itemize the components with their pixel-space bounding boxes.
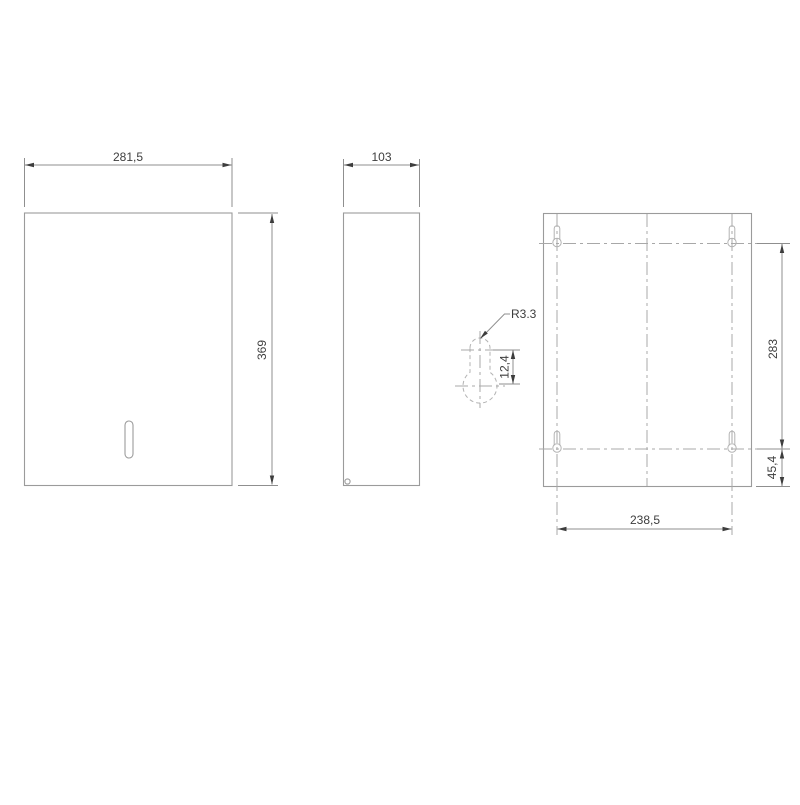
back-outline	[544, 214, 752, 487]
side-view	[344, 213, 420, 486]
dim-back-holes-spacing: 238,5	[558, 513, 732, 531]
dim-keyhole-offset: 12,4	[493, 350, 520, 384]
towel-slot	[125, 421, 133, 458]
arrowhead-icon	[344, 163, 353, 167]
arrowhead-icon	[558, 527, 567, 531]
front-view	[25, 213, 233, 486]
dim-side-depth: 103	[344, 150, 420, 207]
arrowhead-icon	[780, 450, 784, 459]
arrowhead-icon	[723, 527, 732, 531]
dim-label-front-height: 369	[255, 340, 269, 360]
drawing-canvas: 281,5 369 103 R3.3 12,4	[0, 0, 800, 800]
arrowhead-icon	[223, 163, 232, 167]
arrowhead-icon	[25, 163, 34, 167]
dim-label-front-width: 281,5	[113, 150, 143, 164]
dim-label-bottom-offset: 45,4	[765, 455, 779, 479]
dim-label-holes-height: 283	[766, 339, 780, 359]
arrowhead-icon	[780, 244, 784, 253]
dim-front-width: 281,5	[25, 150, 233, 207]
side-outline	[344, 213, 420, 486]
arrowhead-icon	[780, 477, 784, 486]
keyhole-detail: R3.3	[455, 307, 537, 408]
arrowhead-icon	[780, 440, 784, 449]
arrowhead-icon	[410, 163, 419, 167]
dim-label-keyhole-offset: 12,4	[498, 355, 512, 379]
extension-lines	[344, 159, 420, 207]
technical-drawing: 281,5 369 103 R3.3 12,4	[0, 0, 800, 800]
dim-front-height: 369	[238, 213, 278, 486]
dim-label-holes-spacing: 238,5	[630, 513, 660, 527]
dim-back-holes-height: 283	[757, 244, 790, 450]
back-view	[539, 214, 790, 536]
lock-hole	[345, 479, 350, 484]
keyhole-outline	[463, 338, 497, 403]
dim-back-bottom-offset: 45,4	[756, 450, 790, 487]
dim-label-radius: R3.3	[511, 307, 537, 321]
arrowhead-icon	[270, 476, 274, 485]
front-outline	[25, 213, 233, 486]
dim-label-side-depth: 103	[371, 150, 391, 164]
arrowhead-icon	[270, 214, 274, 223]
